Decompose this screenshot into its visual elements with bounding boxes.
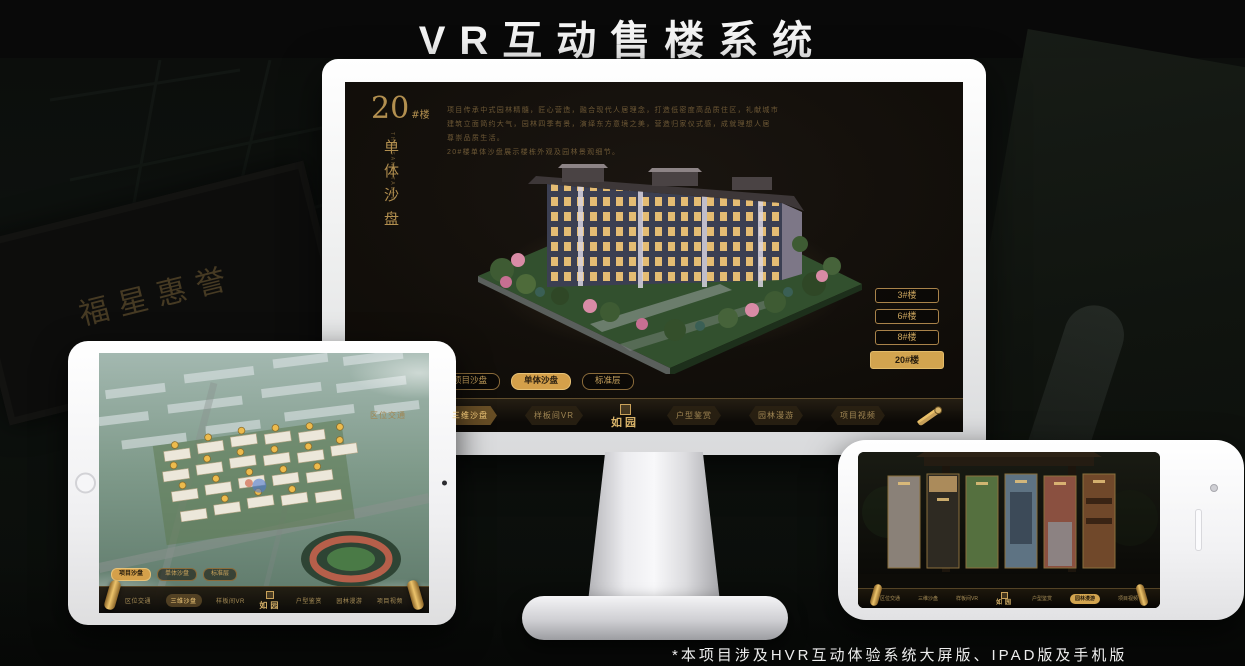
seal-icon bbox=[266, 591, 274, 599]
phone-screen: 区位交通 三维沙盘 样板间VR 如园 户型鉴赏 园林漫游 项目视频 bbox=[858, 452, 1160, 608]
seal-icon bbox=[620, 404, 631, 415]
tablet: 项目沙盘 单体沙盘 标准层 区位交通 三维沙盘 样板间VR 如园 户型鉴赏 园林… bbox=[68, 341, 456, 625]
brand-logo[interactable]: 如园 bbox=[611, 404, 639, 428]
plaque-text: 福星惠誉 bbox=[74, 252, 240, 333]
nav-item-project-video[interactable]: 项目视频 bbox=[831, 406, 885, 425]
tab-project-sandbox[interactable]: 项目沙盘 bbox=[111, 568, 151, 581]
nav-item-showroom-vr[interactable]: 样板间VR bbox=[956, 595, 978, 602]
building-render bbox=[470, 134, 870, 374]
nav-item-location[interactable]: 区位交通 bbox=[125, 596, 151, 605]
block-title: 20#楼 单体沙盘 bbox=[371, 94, 430, 257]
nav-item-garden-tour[interactable]: 园林漫游 bbox=[336, 596, 362, 605]
tab-single-sandbox[interactable]: 单体沙盘 bbox=[511, 373, 571, 390]
home-button[interactable] bbox=[75, 473, 96, 494]
camera-icon bbox=[1210, 484, 1218, 492]
phone: 区位交通 三维沙盘 样板间VR 如园 户型鉴赏 园林漫游 项目视频 bbox=[838, 440, 1244, 620]
tablet-bottom-nav: 区位交通 三维沙盘 样板间VR 如园 户型鉴赏 园林漫游 项目视频 bbox=[99, 586, 429, 613]
nav-item-showroom-vr[interactable]: 样板间VR bbox=[525, 406, 583, 425]
nav-item-3d-sandbox[interactable]: 三维沙盘 bbox=[918, 595, 938, 602]
brand-logo[interactable]: 如园 bbox=[259, 591, 281, 609]
nav-item-location[interactable]: 区位交通 bbox=[880, 595, 900, 602]
phone-bottom-nav: 区位交通 三维沙盘 样板间VR 如园 户型鉴赏 园林漫游 项目视频 bbox=[858, 588, 1160, 608]
floor-button[interactable]: 3#楼 bbox=[875, 288, 939, 303]
vertical-subtitle: THE SAND TABLE bbox=[389, 132, 395, 202]
floor-button-selected[interactable]: 20#楼 bbox=[870, 351, 944, 369]
nav-item-unit-plans[interactable]: 户型鉴赏 bbox=[1032, 595, 1052, 602]
monitor-stand-neck bbox=[588, 452, 720, 602]
tablet-mode-tabs: 项目沙盘 单体沙盘 标准层 bbox=[111, 568, 237, 581]
tab-standard-floor[interactable]: 标准层 bbox=[203, 568, 237, 581]
nav-item-garden-tour[interactable]: 园林漫游 bbox=[749, 406, 803, 425]
tab-standard-floor[interactable]: 标准层 bbox=[582, 373, 634, 390]
floor-button-group: 3#楼 6#楼 8#楼 20#楼 bbox=[867, 288, 947, 369]
nav-item-unit-plans[interactable]: 户型鉴赏 bbox=[296, 596, 322, 605]
nav-item-garden-tour[interactable]: 园林漫游 bbox=[1070, 594, 1100, 604]
nav-item-project-video[interactable]: 项目视频 bbox=[377, 596, 403, 605]
page-title: VR互动售楼系统 bbox=[0, 8, 1245, 66]
nav-item-project-video[interactable]: 项目视频 bbox=[1118, 595, 1138, 602]
tablet-screen: 项目沙盘 单体沙盘 标准层 区位交通 三维沙盘 样板间VR 如园 户型鉴赏 园林… bbox=[99, 353, 429, 613]
brand-logo[interactable]: 如园 bbox=[996, 592, 1014, 606]
monitor-stand-base bbox=[522, 596, 788, 640]
nav-item-unit-plans[interactable]: 户型鉴赏 bbox=[667, 406, 721, 425]
mode-tabs: 项目沙盘 单体沙盘 标准层 bbox=[440, 373, 634, 390]
camera-icon bbox=[442, 481, 447, 486]
page: 福星惠誉 VR互动售楼系统 20#楼 单体沙盘 THE SAND TABLE 项… bbox=[0, 0, 1245, 666]
scroll-icon[interactable] bbox=[913, 403, 947, 429]
nav-item-3d-sandbox[interactable]: 三维沙盘 bbox=[166, 594, 202, 607]
nav-item-showroom-vr[interactable]: 样板间VR bbox=[216, 596, 245, 605]
speaker-slot bbox=[1195, 509, 1202, 551]
footnote: *本项目涉及HVR互动体验系统大屏版、IPAD版及手机版 bbox=[672, 644, 1127, 665]
floor-button[interactable]: 8#楼 bbox=[875, 330, 939, 345]
floor-button[interactable]: 6#楼 bbox=[875, 309, 939, 324]
tab-single-sandbox[interactable]: 单体沙盘 bbox=[157, 568, 197, 581]
seal-icon bbox=[1001, 592, 1008, 599]
block-number: 20#楼 bbox=[371, 94, 430, 131]
garden-panorama-render bbox=[858, 452, 1160, 608]
